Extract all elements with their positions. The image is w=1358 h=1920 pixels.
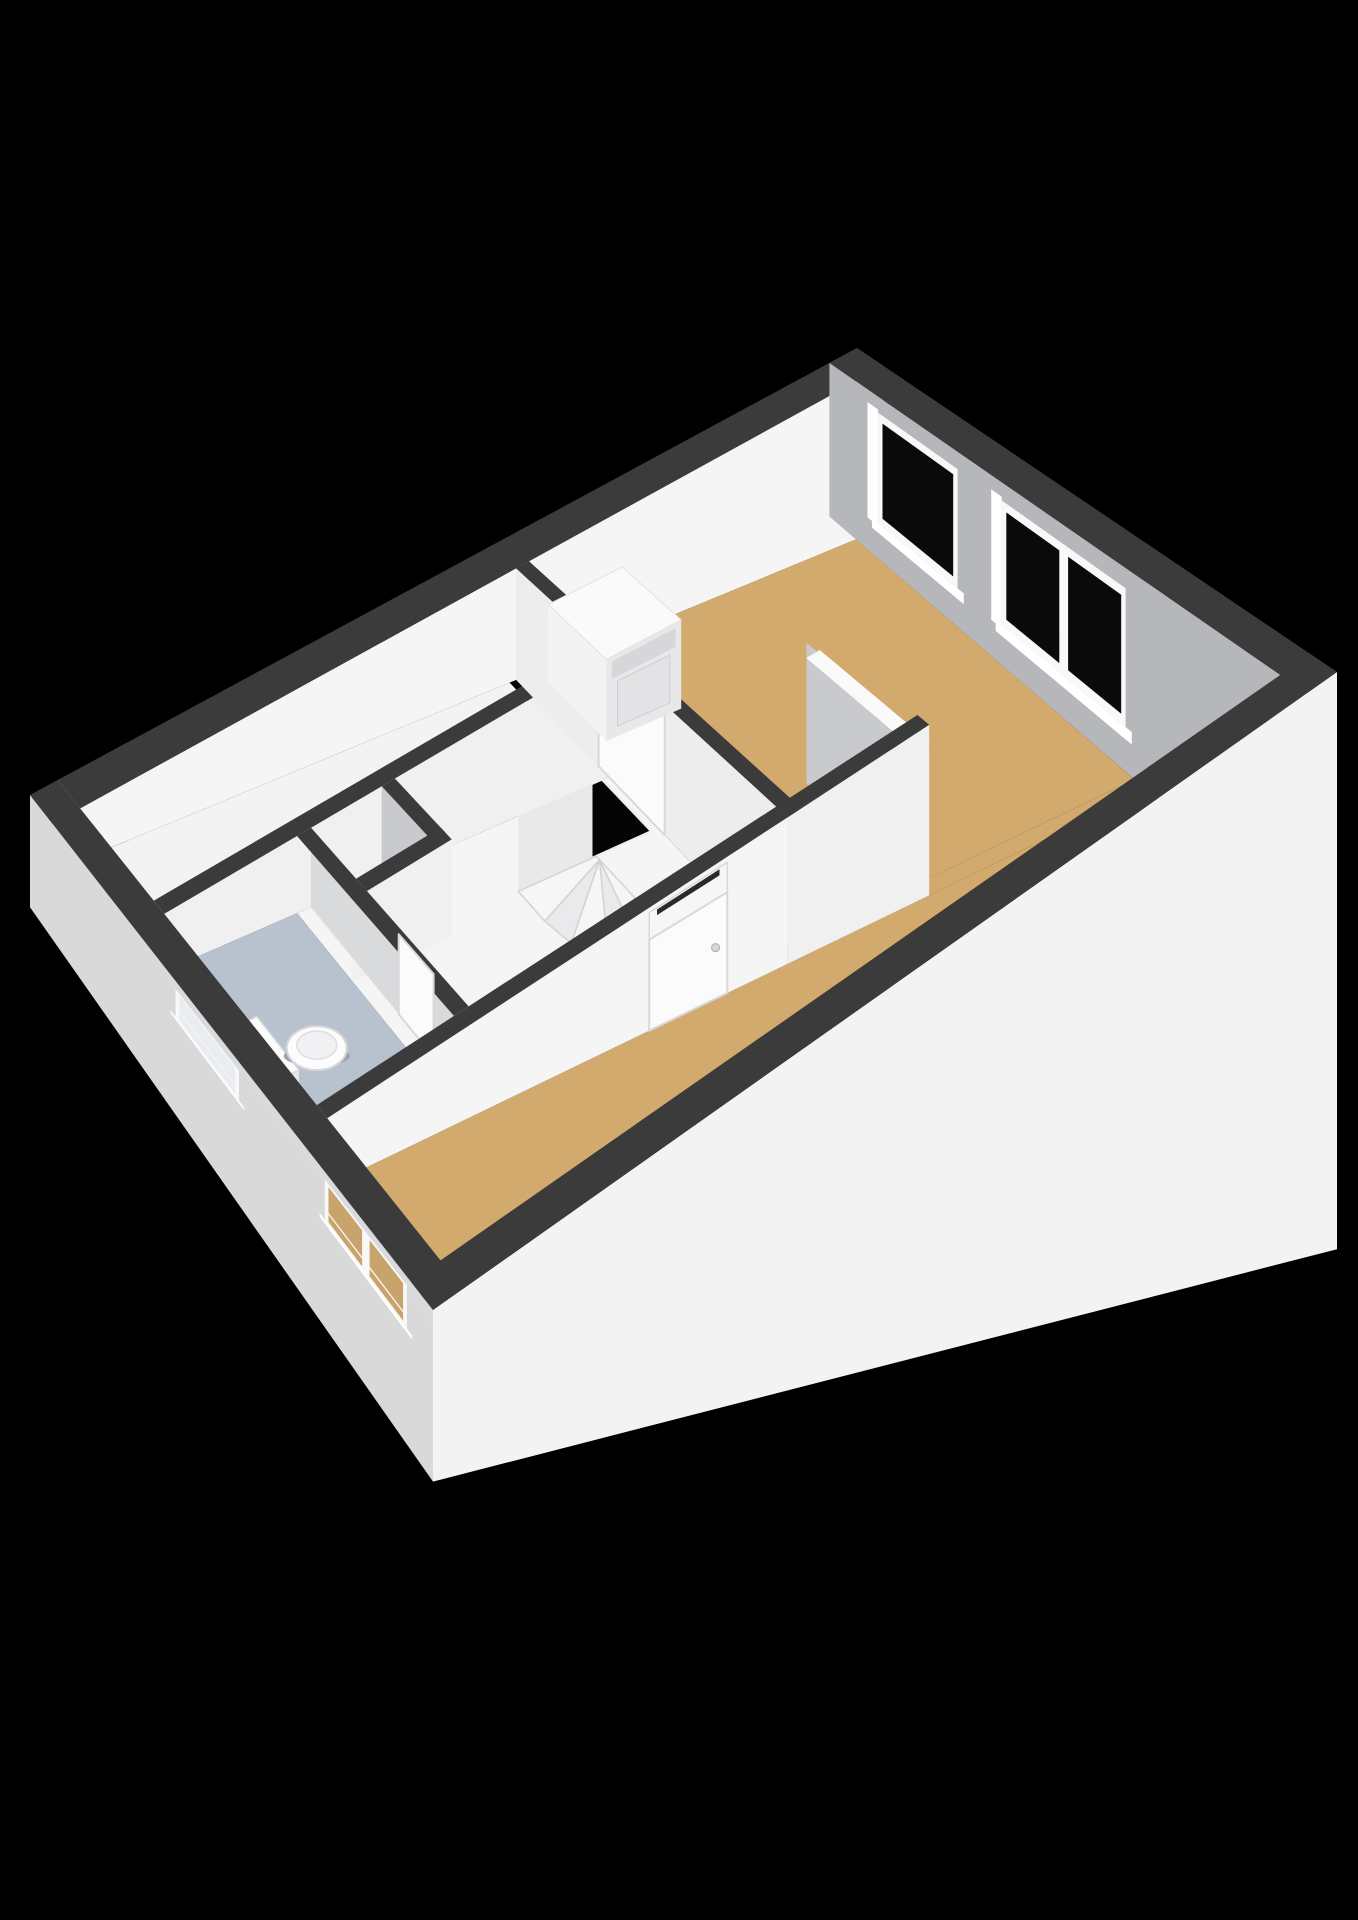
toilet-fixture-seat — [297, 1031, 337, 1059]
door-front-handle — [712, 944, 720, 952]
window-ne-single-reveal — [868, 402, 879, 526]
window-ne-double-reveal — [991, 489, 1002, 628]
floorplan-scene — [0, 0, 1358, 1920]
floorplan-3d-render: 3D floor plan render — ground floor — [0, 0, 1358, 1920]
